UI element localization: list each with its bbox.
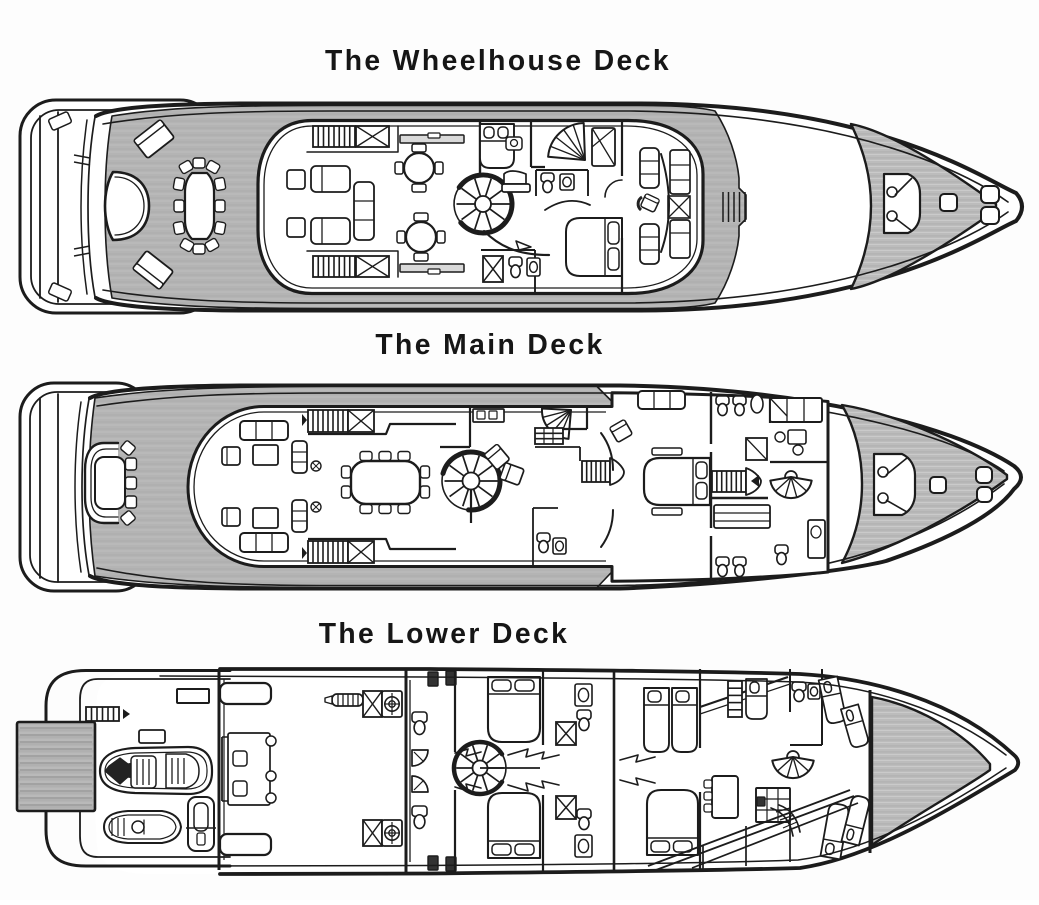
svg-text:The Wheelhouse Deck: The Wheelhouse Deck [325,44,671,76]
svg-text:The Lower Deck: The Lower Deck [319,617,570,649]
svg-text:The Main Deck: The Main Deck [375,328,604,360]
